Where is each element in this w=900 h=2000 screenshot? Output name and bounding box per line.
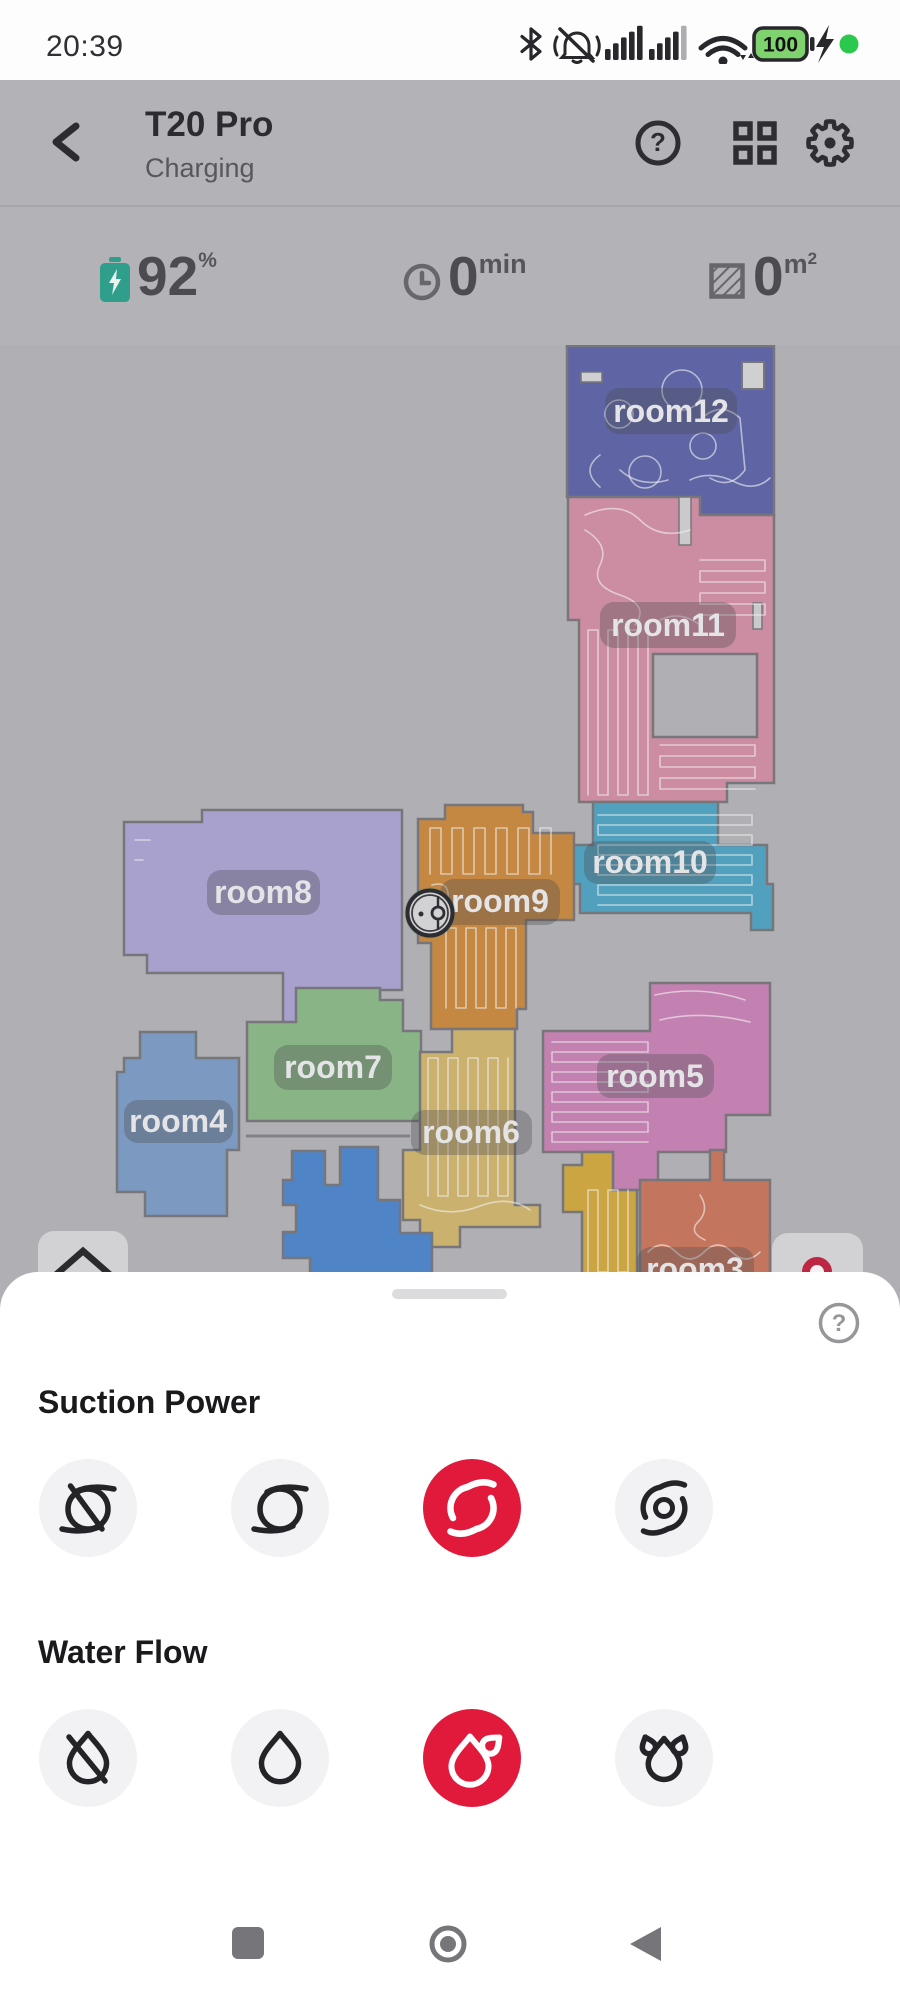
- svg-text:?: ?: [650, 127, 666, 157]
- svg-text:100: 100: [763, 34, 798, 57]
- svg-text:?: ?: [832, 1310, 847, 1337]
